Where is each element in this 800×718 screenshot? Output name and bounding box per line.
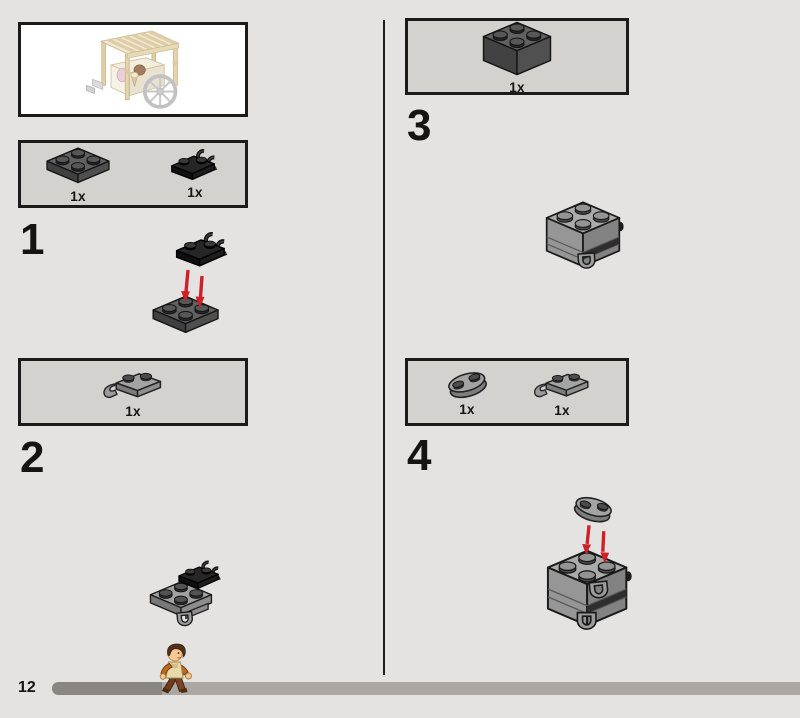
progress-minifigure-icon xyxy=(151,641,197,698)
clip-plate-gray-icon xyxy=(98,366,168,403)
plate-2x2-icon xyxy=(153,296,218,332)
part-item: 1x xyxy=(439,367,495,417)
part-quantity: 1x xyxy=(509,80,525,95)
clip-plate-black-icon xyxy=(164,149,226,184)
part-quantity: 1x xyxy=(70,189,86,204)
step2-result-diagram xyxy=(142,558,228,634)
part-item: 1x xyxy=(164,149,226,200)
step2-parts-callout: 1x xyxy=(18,358,248,426)
page-number: 12 xyxy=(18,679,36,697)
step1-assembly-diagram xyxy=(128,224,240,346)
step2-number: 2 xyxy=(20,436,43,480)
step1-parts-callout: 1x 1x xyxy=(18,140,248,208)
step1-number: 1 xyxy=(20,218,43,262)
part-item: 1x xyxy=(40,144,116,204)
instruction-page: 1x 1x 1 1x 2 xyxy=(0,0,800,718)
step3-result-diagram xyxy=(538,198,628,281)
hanging-clip-icon xyxy=(177,612,193,627)
model-preview-panel xyxy=(18,22,248,117)
step3-parts-callout: 1x xyxy=(405,18,629,95)
clip-plate-black-icon xyxy=(177,234,227,266)
brick-2x2-icon xyxy=(476,18,558,79)
rounded-plate-icon xyxy=(439,367,495,401)
ice-cream-cart-preview-image xyxy=(73,28,193,112)
part-quantity: 1x xyxy=(187,185,203,200)
column-divider xyxy=(383,20,385,675)
part-item: 1x xyxy=(98,366,168,419)
rounded-plate-icon xyxy=(567,492,618,534)
part-item: 1x xyxy=(529,367,595,418)
step4-parts-callout: 1x 1x xyxy=(405,358,629,426)
part-quantity: 1x xyxy=(459,402,475,417)
step4-assembly-diagram xyxy=(538,492,648,641)
part-quantity: 1x xyxy=(125,404,141,419)
step4-number: 4 xyxy=(407,434,430,478)
part-item: 1x xyxy=(476,18,558,95)
plate-2x2-icon xyxy=(40,144,116,188)
step3-number: 3 xyxy=(407,104,430,148)
page-progress-fill xyxy=(52,682,162,695)
part-quantity: 1x xyxy=(554,403,570,418)
clip-plate-gray-icon xyxy=(529,367,595,402)
